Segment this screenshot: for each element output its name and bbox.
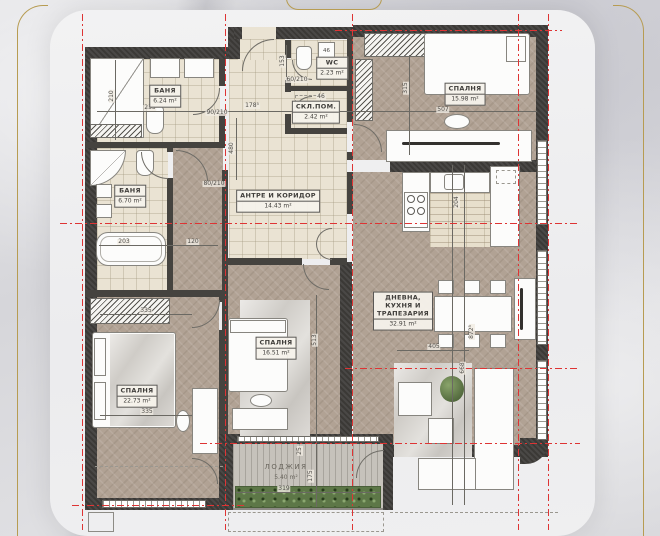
room-label-storage: СКЛ.ПОМ. 2.42 m² xyxy=(292,101,340,124)
room-area: 14.43 m² xyxy=(237,202,319,212)
room-label-bedroom-1: СПАЛНЯ 15.98 m² xyxy=(445,83,486,106)
room-label-bath-1: БАНЯ 6.24 m² xyxy=(149,85,181,108)
room-label-wc: WC 2.23 m² xyxy=(316,57,348,80)
room-area: 22.73 m² xyxy=(118,397,157,407)
room-label-bedroom-2: СПАЛНЯ 16.51 m² xyxy=(256,337,297,360)
room-name: БАНЯ xyxy=(115,186,145,197)
dimension-label: 405 xyxy=(427,344,440,350)
dimension-label: 315 xyxy=(403,81,409,94)
dimension-label: 60/210 xyxy=(285,77,308,83)
room-name: WC xyxy=(317,58,347,69)
room-label-living: ДНЕВНА, КУХНЯ И ТРАПЕЗАРИЯ 32.91 m² xyxy=(373,292,433,331)
room-name: БАНЯ xyxy=(150,86,180,97)
dimension-label: 25 xyxy=(297,446,303,456)
dimension-label: 46 xyxy=(316,94,326,100)
dimension-label: 507 xyxy=(436,107,449,113)
room-name: ДНЕВНА, КУХНЯ И ТРАПЕЗАРИЯ xyxy=(374,293,432,320)
room-area: 2.42 m² xyxy=(293,113,339,123)
dimension-label: 210 xyxy=(109,89,115,102)
room-area: 5.40 m² xyxy=(262,473,311,483)
room-label-bath-2: БАНЯ 6.70 m² xyxy=(114,185,146,208)
dimension-label: 872⁵ xyxy=(469,324,475,340)
dimension-label: 203 xyxy=(117,239,130,245)
room-label-bedroom-3: СПАЛНЯ 22.73 m² xyxy=(117,385,158,408)
dimension-label: 319 xyxy=(277,486,290,492)
room-area: 16.51 m² xyxy=(257,349,296,359)
dimension-label: 335 xyxy=(139,308,152,314)
room-name: СПАЛНЯ xyxy=(446,84,485,95)
room-label-loggia: ЛОДЖИЯ 5.40 m² xyxy=(262,462,311,482)
room-area: 15.98 m² xyxy=(446,95,485,105)
dimension-label: 80/210 xyxy=(202,181,225,187)
room-area: 32.91 m² xyxy=(374,320,432,330)
dimension-label: 204 xyxy=(454,195,460,208)
room-name: АНТРЕ И КОРИДОР xyxy=(237,191,319,202)
dimension-label: 120 xyxy=(186,239,199,245)
dimension-label: 335 xyxy=(140,409,153,415)
dimension-label: 480 xyxy=(229,141,235,154)
floor-plan-scene: 46 xyxy=(0,0,660,536)
dimension-layer: 210235178⁵480153463155072031203353355132… xyxy=(0,0,660,536)
dimension-label: 668 xyxy=(460,361,466,374)
room-label-hall: АНТРЕ И КОРИДОР 14.43 m² xyxy=(236,190,320,213)
room-name: СПАЛНЯ xyxy=(118,386,157,397)
room-area: 6.24 m² xyxy=(150,97,180,107)
room-area: 2.23 m² xyxy=(317,69,347,79)
dimension-label: 513 xyxy=(312,333,318,346)
room-area: 6.70 m² xyxy=(115,197,145,207)
room-name: СКЛ.ПОМ. xyxy=(293,102,339,113)
dimension-label: 153 xyxy=(280,54,286,67)
dimension-label: 90/210 xyxy=(205,110,228,116)
room-name: ЛОДЖИЯ xyxy=(262,462,311,473)
floor-plan: 46 xyxy=(0,0,660,536)
room-name: СПАЛНЯ xyxy=(257,338,296,349)
dimension-label: 178⁵ xyxy=(244,103,260,109)
